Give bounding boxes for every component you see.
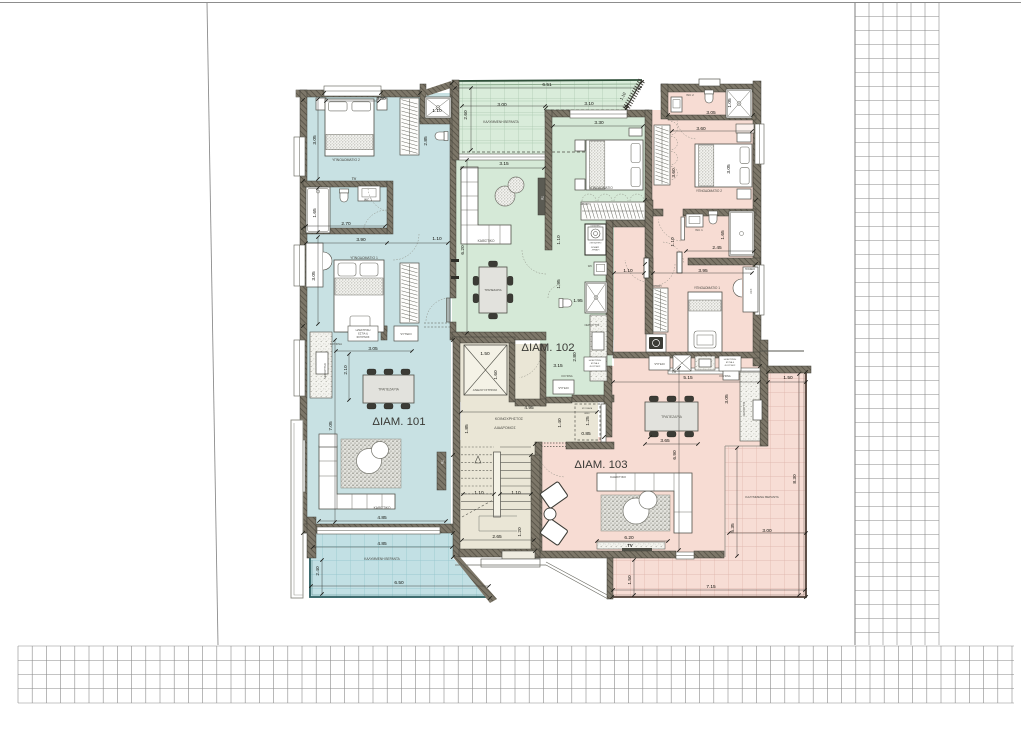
svg-text:3.15: 3.15	[553, 363, 563, 369]
svg-text:1.20: 1.20	[517, 527, 523, 537]
svg-text:ΔΙΑΜ. 103: ΔΙΑΜ. 103	[574, 459, 627, 471]
svg-text:2.40: 2.40	[315, 566, 321, 576]
svg-text:ΝΕΡΟΧΥΤΗΣ: ΝΕΡΟΧΥΤΗΣ	[323, 363, 327, 379]
svg-text:ΦΟΥΡΝΟΣ: ΦΟΥΡΝΟΣ	[590, 365, 602, 368]
svg-text:ΤΡΑΠΕΖΑΡΙΑ: ΤΡΑΠΕΖΑΡΙΑ	[661, 415, 683, 419]
svg-text:7.15: 7.15	[706, 584, 716, 590]
svg-text:ΕΣΤΙΑ &: ΕΣΤΙΑ &	[591, 362, 600, 365]
svg-text:1.10: 1.10	[432, 108, 442, 114]
svg-text:WC 1: WC 1	[364, 198, 372, 202]
svg-text:ΚΑΛΥΜΜΕΝΗ ΒΕΡΑΝΤΑ: ΚΑΛΥΜΜΕΝΗ ΒΕΡΑΝΤΑ	[483, 120, 519, 124]
svg-text:4.95: 4.95	[524, 405, 534, 411]
svg-text:ΑΝΕΛΚΥΣΤΗΡΑΣ: ΑΝΕΛΚΥΣΤΗΡΑΣ	[473, 388, 497, 392]
svg-text:3.90: 3.90	[356, 237, 366, 243]
svg-text:5.35: 5.35	[730, 523, 736, 533]
svg-text:ΗΛΕΚΤΡΙΚΗ: ΗΛΕΚΤΡΙΚΗ	[724, 359, 737, 361]
svg-text:2.85: 2.85	[423, 136, 429, 146]
svg-text:ΨΥΓΕΙΟ: ΨΥΓΕΙΟ	[400, 332, 412, 336]
svg-text:2.10: 2.10	[343, 365, 349, 375]
svg-text:ΔΩΕΛ: ΔΩΕΛ	[584, 412, 590, 415]
svg-text:ΝΤΟΥΛΑΠΑ: ΝΤΟΥΛΑΠΑ	[582, 407, 593, 410]
svg-text:1.10: 1.10	[556, 235, 562, 245]
svg-text:ΕΣΤΙΑ &: ΕΣΤΙΑ &	[358, 332, 368, 336]
svg-text:ΦΟΥΡΝΟΣ: ΦΟΥΡΝΟΣ	[725, 364, 737, 367]
svg-text:6.90: 6.90	[672, 450, 678, 460]
svg-text:ΠΛΥΝΤΗΡΙΟ: ΠΛΥΝΤΗΡΙΟ	[591, 226, 601, 228]
svg-text:ΛΡΜΑΡΙ: ΛΡΜΑΡΙ	[591, 246, 600, 249]
svg-text:4.85: 4.85	[377, 541, 387, 547]
svg-text:1.25: 1.25	[585, 416, 591, 426]
svg-text:2.65: 2.65	[492, 534, 502, 540]
svg-text:1.95: 1.95	[573, 298, 583, 304]
svg-text:ΤΡΑΠΕΖΑΡΙΑ: ΤΡΑΠΕΖΑΡΙΑ	[484, 288, 501, 292]
svg-text:ΔΙΑΜ. 101: ΔΙΑΜ. 101	[372, 416, 425, 428]
svg-text:4.85: 4.85	[377, 515, 387, 521]
svg-text:ΚΑΛΥΜΜΕΝΗ ΒΕΡΑΝΤΑ: ΚΑΛΥΜΜΕΝΗ ΒΕΡΑΝΤΑ	[745, 495, 779, 499]
svg-text:ΓΡΑΦΕΙΟ: ΓΡΑΦΕΙΟ	[745, 268, 755, 271]
svg-text:ΛΡΜΑΡΙ: ΛΡΜΑΡΙ	[652, 285, 661, 288]
svg-text:6.20: 6.20	[624, 535, 634, 541]
svg-text:ΨΥΓΕΙΟ: ΨΥΓΕΙΟ	[558, 386, 569, 390]
svg-text:ΥΠΝΟΔΩΜΑΤΙΟ 2: ΥΠΝΟΔΩΜΑΤΙΟ 2	[696, 189, 722, 193]
svg-text:6.51: 6.51	[542, 82, 552, 88]
svg-text:ΝΕΡΟΧΥΤΗΣ: ΝΕΡΟΧΥΤΗΣ	[585, 324, 600, 327]
svg-text:3.30: 3.30	[594, 120, 604, 126]
svg-text:ΚΟΥΖΙΝΑ: ΚΟΥΖΙΝΑ	[719, 374, 730, 378]
svg-text:ΤΡΑΠΕΖΑΡΙΑ: ΤΡΑΠΕΖΑΡΙΑ	[378, 388, 400, 392]
svg-text:3.05: 3.05	[724, 394, 730, 404]
svg-text:1.50: 1.50	[749, 288, 753, 294]
svg-text:ΦΟΥΡΝΟΣ: ΦΟΥΡΝΟΣ	[357, 335, 370, 339]
svg-text:TV: TV	[627, 543, 633, 548]
svg-text:ΥΠΝΟΔΩΜΑΤΙΟ 1: ΥΠΝΟΔΩΜΑΤΙΟ 1	[350, 256, 378, 260]
svg-text:1.40: 1.40	[557, 418, 563, 428]
svg-text:6.20: 6.20	[460, 245, 466, 255]
svg-text:1.10: 1.10	[511, 490, 521, 496]
svg-text:WC: WC	[588, 264, 592, 268]
svg-text:3.05: 3.05	[312, 135, 318, 145]
svg-text:1.95: 1.95	[556, 279, 562, 289]
svg-text:3.15: 3.15	[499, 161, 509, 167]
svg-text:5.15: 5.15	[683, 375, 693, 381]
svg-text:1.85: 1.85	[464, 424, 470, 434]
svg-text:0.85: 0.85	[581, 431, 591, 437]
svg-text:ΗΛΕΚΤΡΙΚΗ: ΗΛΕΚΤΡΙΚΗ	[589, 360, 602, 362]
svg-text:ΔΙΑΜ. 102: ΔΙΑΜ. 102	[521, 342, 574, 354]
svg-text:3.60: 3.60	[671, 168, 677, 178]
svg-text:8.30: 8.30	[792, 474, 798, 484]
svg-text:1.60: 1.60	[493, 370, 499, 380]
svg-text:3.65: 3.65	[660, 438, 670, 444]
svg-text:ΔΙΑΔΡΟΜΟΣ: ΔΙΑΔΡΟΜΟΣ	[494, 426, 516, 430]
svg-text:2.80: 2.80	[572, 352, 578, 362]
svg-text:6.50: 6.50	[394, 580, 404, 586]
svg-text:2.60: 2.60	[463, 110, 469, 120]
svg-text:ΚΟΥΖΙΝΑ: ΚΟΥΖΙΝΑ	[561, 374, 572, 378]
svg-text:3.05: 3.05	[726, 164, 732, 174]
svg-text:ΚΑΘΙΣΤΙΚΟ: ΚΑΘΙΣΤΙΚΟ	[610, 475, 627, 479]
svg-text:1.50: 1.50	[627, 575, 633, 585]
svg-text:7.05: 7.05	[328, 421, 334, 431]
svg-text:ΚΟΥΖΙΝΑ: ΚΟΥΖΙΝΑ	[330, 342, 342, 346]
svg-text:3.05: 3.05	[311, 271, 317, 281]
svg-text:1.65: 1.65	[720, 230, 726, 240]
svg-text:ΛΡΜΑΡΙ: ΛΡΜΑΡΙ	[580, 203, 589, 206]
svg-text:WC 1: WC 1	[695, 228, 703, 232]
svg-text:ΝΕΡΟΧΥΤΗΣ: ΝΕΡΟΧΥΤΗΣ	[743, 401, 746, 416]
svg-text:ΚΑΛΥΜΜΕΝΗ ΒΕΡΑΝΤΑ: ΚΑΛΥΜΜΕΝΗ ΒΕΡΑΝΤΑ	[364, 557, 400, 561]
svg-text:1.50: 1.50	[783, 375, 793, 381]
svg-text:ΨΥΓΕΙΟ: ΨΥΓΕΙΟ	[654, 362, 665, 366]
svg-text:2.45: 2.45	[712, 245, 722, 251]
svg-text:ΥΠΝΟΔΩΜΑΤΙΟ 2: ΥΠΝΟΔΩΜΑΤΙΟ 2	[332, 158, 360, 162]
svg-text:ΚΑΘΙΣΤΙΚΟ: ΚΑΘΙΣΤΙΚΟ	[478, 239, 495, 243]
svg-text:TV: TV	[672, 370, 677, 374]
svg-text:3.05: 3.05	[706, 110, 716, 116]
svg-text:WC 2: WC 2	[686, 93, 694, 97]
svg-text:ΣΤΕΓΝΩΤΗΡΙΟ: ΣΤΕΓΝΩΤΗΡΙΟ	[590, 243, 602, 245]
svg-text:ΥΠΝΟΔΩΜΑΤΙΟ 1: ΥΠΝΟΔΩΜΑΤΙΟ 1	[694, 286, 720, 290]
svg-text:1.65: 1.65	[312, 208, 318, 218]
svg-text:1.10: 1.10	[432, 236, 442, 242]
svg-text:ΥΠΝΟΔΩΜΑΤΙΟ: ΥΠΝΟΔΩΜΑΤΙΟ	[589, 186, 613, 190]
svg-text:1.05: 1.05	[727, 98, 733, 108]
svg-text:1.10: 1.10	[474, 490, 484, 496]
svg-text:1.10: 1.10	[670, 237, 676, 247]
svg-text:ΕΣΤΙΑ &: ΕΣΤΙΑ &	[726, 361, 735, 364]
svg-text:3.00: 3.00	[497, 102, 507, 108]
svg-text:ΚΟΙΝΟΧΡΗΣΤΟΣ: ΚΟΙΝΟΧΡΗΣΤΟΣ	[495, 417, 524, 421]
svg-text:1.50: 1.50	[480, 351, 490, 357]
svg-text:TV: TV	[352, 177, 357, 181]
svg-text:ΗΛΕΚΤΡΙΚΗ: ΗΛΕΚΤΡΙΚΗ	[356, 328, 371, 332]
svg-text:ΚΑΘΙΣΤΙΚΟ: ΚΑΘΙΣΤΙΚΟ	[374, 506, 391, 510]
